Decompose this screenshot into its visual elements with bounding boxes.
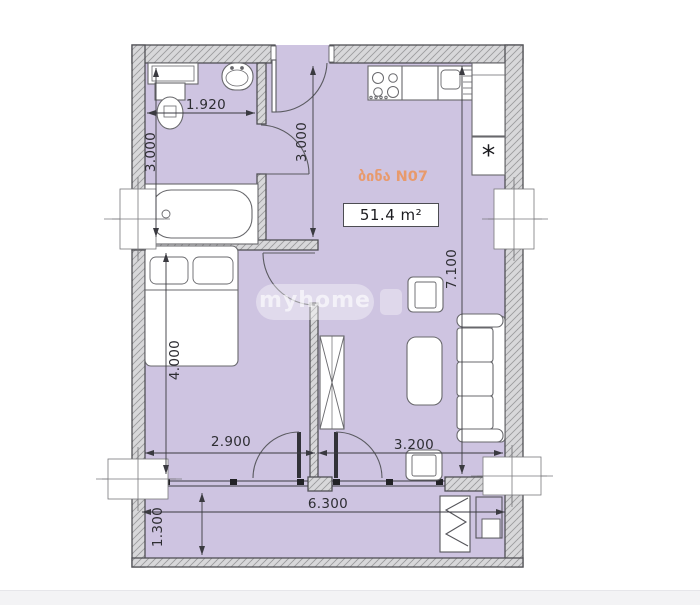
sofa [457,314,505,442]
bottom-strip [0,590,700,605]
kitchen-sink [441,70,460,89]
coffee-table [407,337,442,405]
area-badge: 51.4 m² [343,203,439,227]
washing-machine [148,63,198,84]
dim-hall-depth: 3.000 [294,117,310,167]
dim-balcony-width: 6.300 [303,496,353,512]
armchair [408,277,443,312]
dim-bedroom-depth: 4.000 [167,335,183,385]
wardrobe [320,336,344,429]
dim-living-width: 3.200 [389,437,439,453]
floorplan-image: 1.920 3.000 3.000 4.000 7.100 2.900 3.20… [0,0,700,605]
armchair-2 [406,450,442,480]
bathtub [145,184,258,244]
balcony-louver [440,496,470,552]
dim-bathroom-width: 1.920 [181,97,231,113]
bed [145,246,238,366]
fridge-symbol: * [472,143,505,169]
dim-living-depth: 7.100 [444,244,460,294]
dim-bathroom-depth: 3.000 [143,127,159,177]
kitchen-cabinet [472,63,505,136]
dim-balcony-depth: 1.300 [150,502,166,552]
bath-sink [222,63,253,90]
apartment-number-label: ბინა N07 [350,169,436,185]
floorplan-svg [0,0,700,605]
dim-bedroom-width: 2.900 [206,434,256,450]
